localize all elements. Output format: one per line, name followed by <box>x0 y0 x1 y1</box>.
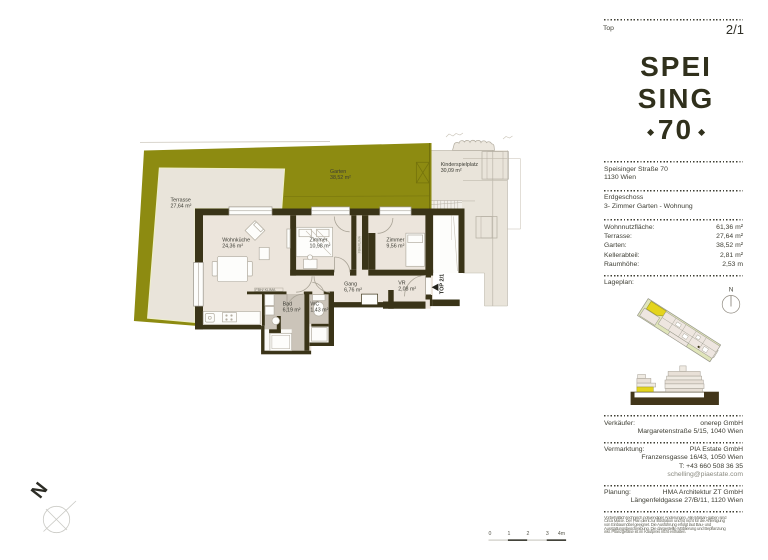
svg-text:9,56 m²: 9,56 m² <box>386 244 404 250</box>
svg-text:38,52 m²: 38,52 m² <box>330 175 351 181</box>
svg-text:4m: 4m <box>558 531 565 537</box>
svg-text:10,98 m²: 10,98 m² <box>310 244 331 250</box>
svg-text:6,76 m²: 6,76 m² <box>344 288 362 294</box>
svg-text:1: 1 <box>508 531 511 537</box>
svg-text:N: N <box>27 479 52 503</box>
svg-text:FBH/KLIMA: FBH/KLIMA <box>358 235 362 253</box>
svg-text:2,08 m²: 2,08 m² <box>398 287 416 293</box>
svg-text:30,09 m²: 30,09 m² <box>441 168 462 174</box>
svg-text:6,19 m²: 6,19 m² <box>283 308 301 314</box>
svg-text:3: 3 <box>546 531 549 537</box>
svg-text:0: 0 <box>488 531 491 537</box>
svg-text:1,43 m²: 1,43 m² <box>310 308 328 314</box>
svg-text:FBH/ KLIMA: FBH/ KLIMA <box>255 288 276 292</box>
svg-text:27,64 m²: 27,64 m² <box>171 204 192 210</box>
svg-text:24,36 m²: 24,36 m² <box>222 244 243 250</box>
svg-text:2: 2 <box>527 531 530 537</box>
svg-text:TOP 2/1: TOP 2/1 <box>440 274 446 294</box>
svg-text:N: N <box>729 287 734 294</box>
